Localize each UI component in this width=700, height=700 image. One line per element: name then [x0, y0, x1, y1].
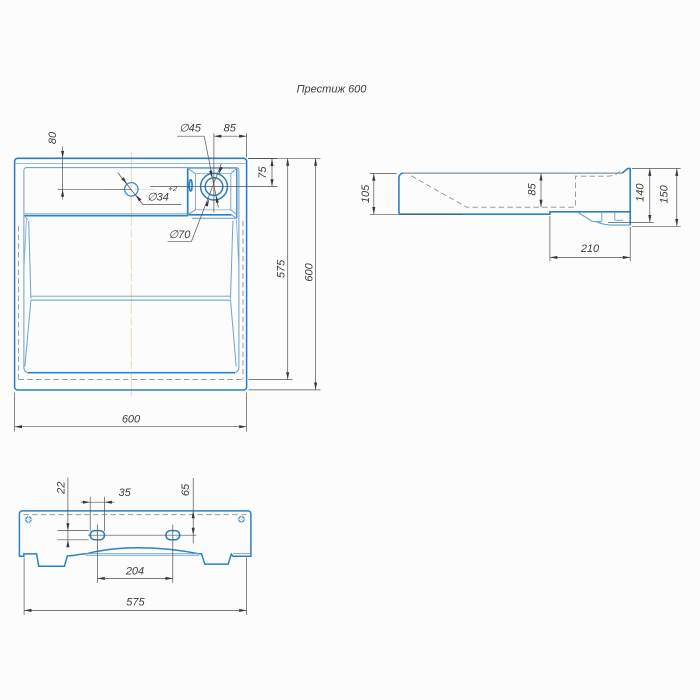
svg-text:65: 65 — [180, 483, 192, 496]
svg-text:+2: +2 — [169, 184, 178, 193]
svg-text:204: 204 — [125, 566, 144, 578]
svg-text:105: 105 — [360, 184, 372, 203]
svg-text:575: 575 — [126, 597, 145, 609]
svg-text:575: 575 — [275, 259, 287, 278]
svg-text:∅45: ∅45 — [179, 123, 202, 135]
svg-text:75: 75 — [257, 166, 269, 179]
svg-text:∅34: ∅34 — [147, 192, 169, 204]
svg-text:85: 85 — [224, 123, 237, 135]
svg-text:22: 22 — [55, 482, 67, 495]
svg-text:210: 210 — [580, 243, 600, 255]
svg-text:600: 600 — [122, 414, 141, 426]
svg-text:80: 80 — [47, 131, 59, 144]
svg-text:35: 35 — [118, 487, 131, 499]
svg-text:85: 85 — [526, 183, 538, 196]
svg-text:Престиж 600: Престиж 600 — [297, 84, 368, 96]
svg-text:140: 140 — [634, 183, 646, 202]
svg-text:600: 600 — [304, 262, 316, 281]
svg-text:150: 150 — [659, 184, 671, 203]
svg-text:∅70: ∅70 — [169, 229, 192, 241]
